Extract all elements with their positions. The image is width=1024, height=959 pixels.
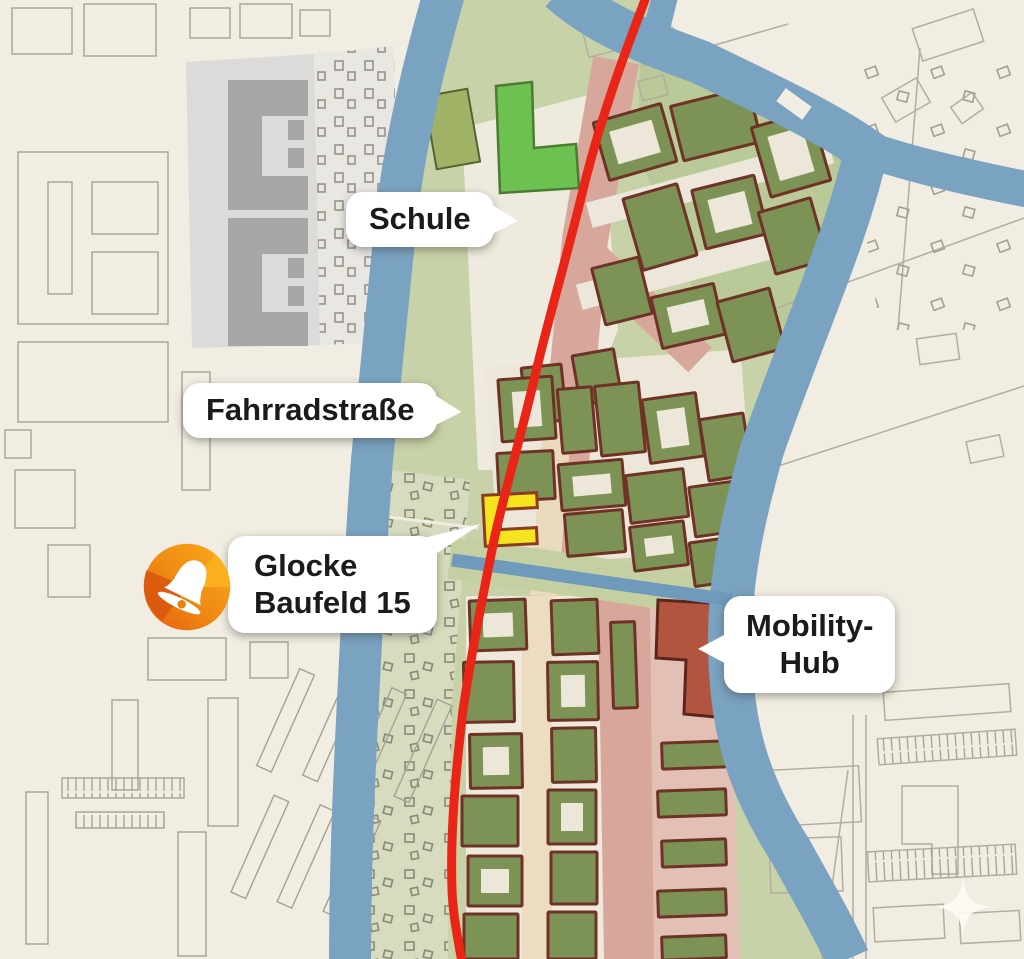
- glocke-marker[interactable]: [140, 540, 234, 634]
- label-schule-text: Schule: [369, 201, 471, 236]
- label-glocke-line2: Baufeld 15: [254, 585, 411, 622]
- building: [658, 789, 727, 817]
- label-fahrradstrasse-text: Fahrradstraße: [206, 392, 414, 427]
- building: [564, 510, 625, 557]
- label-glocke-line1: Glocke: [254, 548, 411, 585]
- building: [662, 935, 727, 959]
- building: [557, 387, 596, 454]
- label-mobility-line1: Mobility-: [746, 608, 873, 645]
- building: [611, 622, 638, 709]
- label-schule[interactable]: Schule: [346, 192, 494, 247]
- bell-icon: [140, 540, 234, 634]
- building: [594, 382, 645, 456]
- building-courtyard: [483, 747, 509, 775]
- building-courtyard: [481, 869, 509, 893]
- building-courtyard: [572, 473, 612, 496]
- building: [625, 469, 688, 524]
- building-courtyard: [483, 612, 514, 637]
- building: [548, 912, 596, 959]
- label-fahrradstrasse[interactable]: Fahrradstraße: [183, 383, 437, 438]
- building: [551, 599, 599, 655]
- building: [464, 914, 518, 959]
- building-courtyard: [561, 803, 583, 831]
- building-courtyard: [561, 675, 586, 707]
- label-glocke-baufeld-15[interactable]: Glocke Baufeld 15: [228, 536, 437, 633]
- building: [462, 796, 518, 846]
- label-mobility-line2: Hub: [746, 645, 873, 682]
- building: [658, 889, 727, 917]
- building-courtyard: [644, 535, 674, 556]
- building: [662, 839, 727, 867]
- building: [662, 741, 727, 769]
- city-map: [0, 0, 1024, 959]
- map-canvas: Schule Fahrradstraße Glocke Baufeld 15 M…: [0, 0, 1024, 959]
- building-courtyard: [656, 407, 689, 449]
- building: [551, 852, 597, 904]
- label-mobility-hub[interactable]: Mobility- Hub: [724, 596, 895, 693]
- building: [552, 728, 597, 783]
